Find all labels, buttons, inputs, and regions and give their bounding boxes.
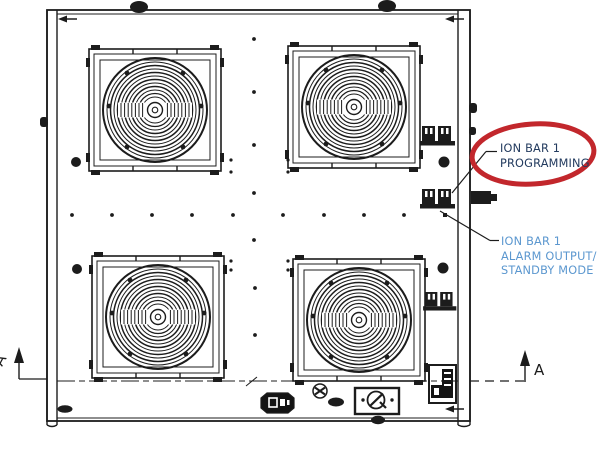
fan-bottom-left xyxy=(89,252,227,382)
engineering-drawing-panel-rear-view: A A ION BAR 1 PROGRAMMING ION BAR 1 ALAR… xyxy=(0,0,600,449)
alarm-label-line2: ALARM OUTPUT/ xyxy=(501,250,597,263)
callout-alarm: ION BAR 1 ALARM OUTPUT/ STANDBY MODE xyxy=(440,211,597,277)
section-arrow-left xyxy=(14,347,24,363)
section-letter-right: A xyxy=(534,361,545,379)
alarm-label-line1: ION BAR 1 xyxy=(501,235,561,248)
top-bumper-right xyxy=(378,0,396,12)
fan-grilles xyxy=(86,42,428,385)
programming-label-line1: ION BAR 1 xyxy=(500,142,560,155)
datum-arrow-top-left xyxy=(58,16,77,23)
datum-arrow-bottom-right xyxy=(445,406,464,413)
bottom-left-stud xyxy=(58,405,73,413)
product-label xyxy=(429,365,456,403)
bottom-edge-tab xyxy=(371,416,385,424)
large-hole-right-lower xyxy=(438,263,449,274)
programming-connector xyxy=(420,126,455,146)
lower-connector xyxy=(423,292,456,311)
left-wall-stud xyxy=(40,117,48,127)
large-hole-right-upper xyxy=(439,157,450,168)
section-marker-right: A xyxy=(470,350,545,382)
fan-bottom-right xyxy=(290,255,428,385)
programming-label-line2: PROGRAMMING xyxy=(500,157,590,170)
drawing-canvas: A A ION BAR 1 PROGRAMMING ION BAR 1 ALAR… xyxy=(0,0,600,449)
power-inlet xyxy=(261,393,294,413)
large-hole-left-lower xyxy=(72,264,82,274)
datum-arrow-top-right xyxy=(445,16,464,23)
right-wall-stud-1 xyxy=(469,103,477,113)
section-arrow-right xyxy=(520,350,530,366)
fan-top-left xyxy=(86,45,224,175)
fan-top-right xyxy=(285,42,423,172)
right-wall-stud-2 xyxy=(469,127,476,135)
adjuster-plate xyxy=(355,388,399,414)
oval-cutout xyxy=(328,398,344,407)
alarm-label-line3: STANDBY MODE xyxy=(501,264,594,277)
screw-head xyxy=(313,384,327,398)
alarm-output-connector xyxy=(420,189,455,209)
top-bumper-left xyxy=(130,1,148,13)
section-marker-left: A xyxy=(0,347,47,379)
large-hole-left-upper xyxy=(71,157,81,167)
section-cut-line: A A xyxy=(0,347,545,386)
section-letter-left: A xyxy=(0,351,11,369)
ion-bar-plug xyxy=(471,191,497,204)
